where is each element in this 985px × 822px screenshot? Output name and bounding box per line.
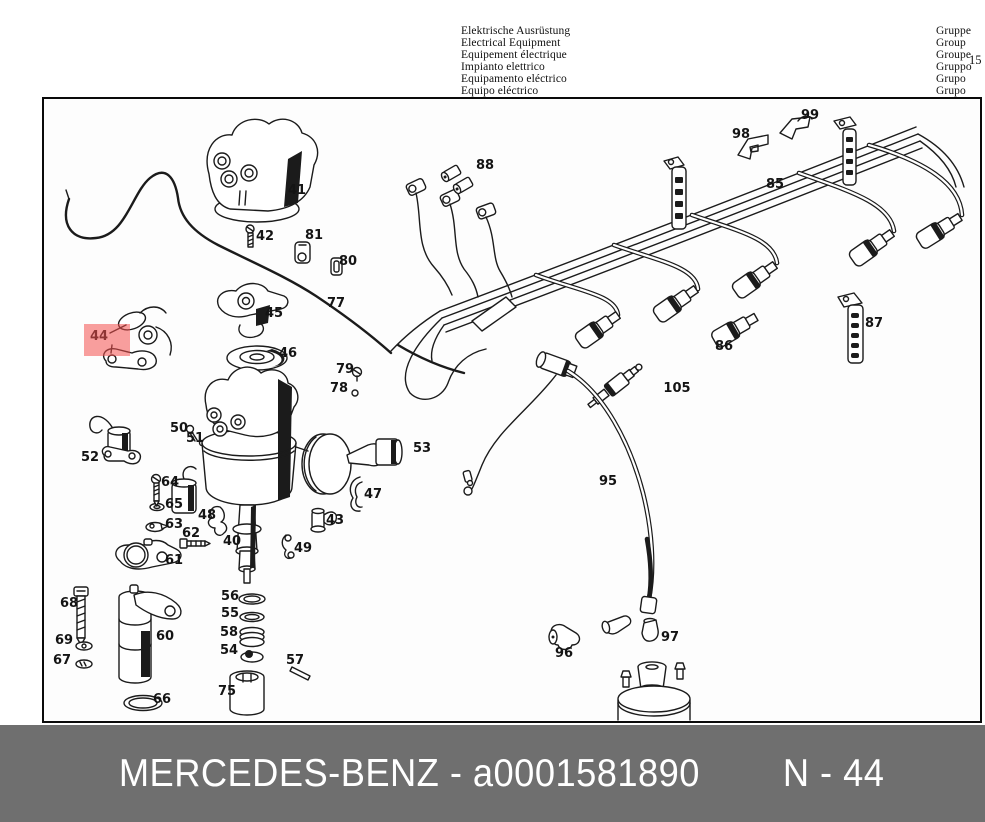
part-label-68: 68 bbox=[60, 596, 78, 611]
part-label-45: 45 bbox=[265, 306, 283, 321]
distributor-cap bbox=[207, 119, 317, 222]
part-label-97: 97 bbox=[661, 630, 679, 645]
part-label-88: 88 bbox=[476, 158, 494, 173]
header-language-list: Elektrische AusrüstungElectrical Equipme… bbox=[461, 25, 570, 98]
ignition-coil bbox=[618, 662, 690, 720]
highlight-44[interactable] bbox=[84, 324, 130, 356]
part-label-53: 53 bbox=[413, 441, 431, 456]
language-label-3: Impianto elettrico bbox=[461, 61, 570, 73]
part-label-86: 86 bbox=[715, 339, 733, 354]
part-label-99: 99 bbox=[801, 108, 819, 123]
header-group-list: GruppeGroupGroupeGruppoGrupoGrupo bbox=[936, 25, 972, 98]
language-label-4: Equipamento eléctrico bbox=[461, 73, 570, 85]
language-label-5: Equipo eléctrico bbox=[461, 85, 570, 97]
spark-plug bbox=[585, 360, 646, 412]
part-label-87: 87 bbox=[865, 316, 883, 331]
language-label-0: Elektrische Ausrüstung bbox=[461, 25, 570, 37]
part-label-52: 52 bbox=[81, 450, 99, 465]
part-label-105: 105 bbox=[663, 381, 690, 396]
part-label-64: 64 bbox=[161, 475, 179, 490]
part-label-85: 85 bbox=[766, 177, 784, 192]
part-label-58: 58 bbox=[220, 625, 238, 640]
part-label-96: 96 bbox=[555, 646, 573, 661]
part-label-40: 40 bbox=[223, 534, 241, 549]
parts-diagram: 4142818077454644797888989985878610552505… bbox=[42, 97, 982, 723]
part-label-81: 81 bbox=[305, 228, 323, 243]
part-label-79: 79 bbox=[336, 362, 354, 377]
exploded-view-drawing: 4142818077454644797888989985878610552505… bbox=[44, 99, 980, 721]
footer-page-ref: N - 44 bbox=[783, 752, 885, 796]
part-label-69: 69 bbox=[55, 633, 73, 648]
part-label-78: 78 bbox=[330, 381, 348, 396]
part-label-46: 46 bbox=[279, 346, 297, 361]
distributor-assembly bbox=[172, 367, 402, 583]
part-label-77: 77 bbox=[327, 296, 345, 311]
part-label-67: 67 bbox=[53, 653, 71, 668]
group-label-2: Groupe bbox=[936, 49, 972, 61]
language-label-1: Electrical Equipment bbox=[461, 37, 570, 49]
part-label-65: 65 bbox=[165, 497, 183, 512]
part-label-62: 62 bbox=[182, 526, 200, 541]
part-label-61: 61 bbox=[165, 553, 183, 568]
part-label-63: 63 bbox=[165, 517, 183, 532]
part-label-98: 98 bbox=[732, 127, 750, 142]
group-label-1: Group bbox=[936, 37, 972, 49]
group-label-5: Grupo bbox=[936, 85, 972, 97]
part-label-57: 57 bbox=[286, 653, 304, 668]
group-label-4: Grupo bbox=[936, 73, 972, 85]
part-label-80: 80 bbox=[339, 254, 357, 269]
footer-bar: MERCEDES-BENZ - a0001581890 N - 44 bbox=[0, 725, 985, 822]
part-label-95: 95 bbox=[599, 474, 617, 489]
part-label-60: 60 bbox=[156, 629, 174, 644]
part-label-42: 42 bbox=[256, 229, 274, 244]
footer-part-number: MERCEDES-BENZ - a0001581890 bbox=[118, 752, 699, 796]
part-label-56: 56 bbox=[221, 589, 239, 604]
part-label-55: 55 bbox=[221, 606, 239, 621]
part-label-49: 49 bbox=[294, 541, 312, 556]
part-label-66: 66 bbox=[153, 692, 171, 707]
part-label-75: 75 bbox=[218, 684, 236, 699]
group-number: 15 bbox=[969, 53, 982, 68]
coil-cable-95 bbox=[463, 351, 658, 650]
part-label-47: 47 bbox=[364, 487, 382, 502]
part-label-54: 54 bbox=[220, 643, 238, 658]
language-label-2: Equipement électrique bbox=[461, 49, 570, 61]
part-label-41: 41 bbox=[288, 183, 306, 198]
part-label-43: 43 bbox=[326, 513, 344, 528]
part-label-51: 51 bbox=[186, 431, 204, 446]
group-label-0: Gruppe bbox=[936, 25, 972, 37]
group-label-3: Gruppo bbox=[936, 61, 972, 73]
part-label-48: 48 bbox=[198, 508, 216, 523]
